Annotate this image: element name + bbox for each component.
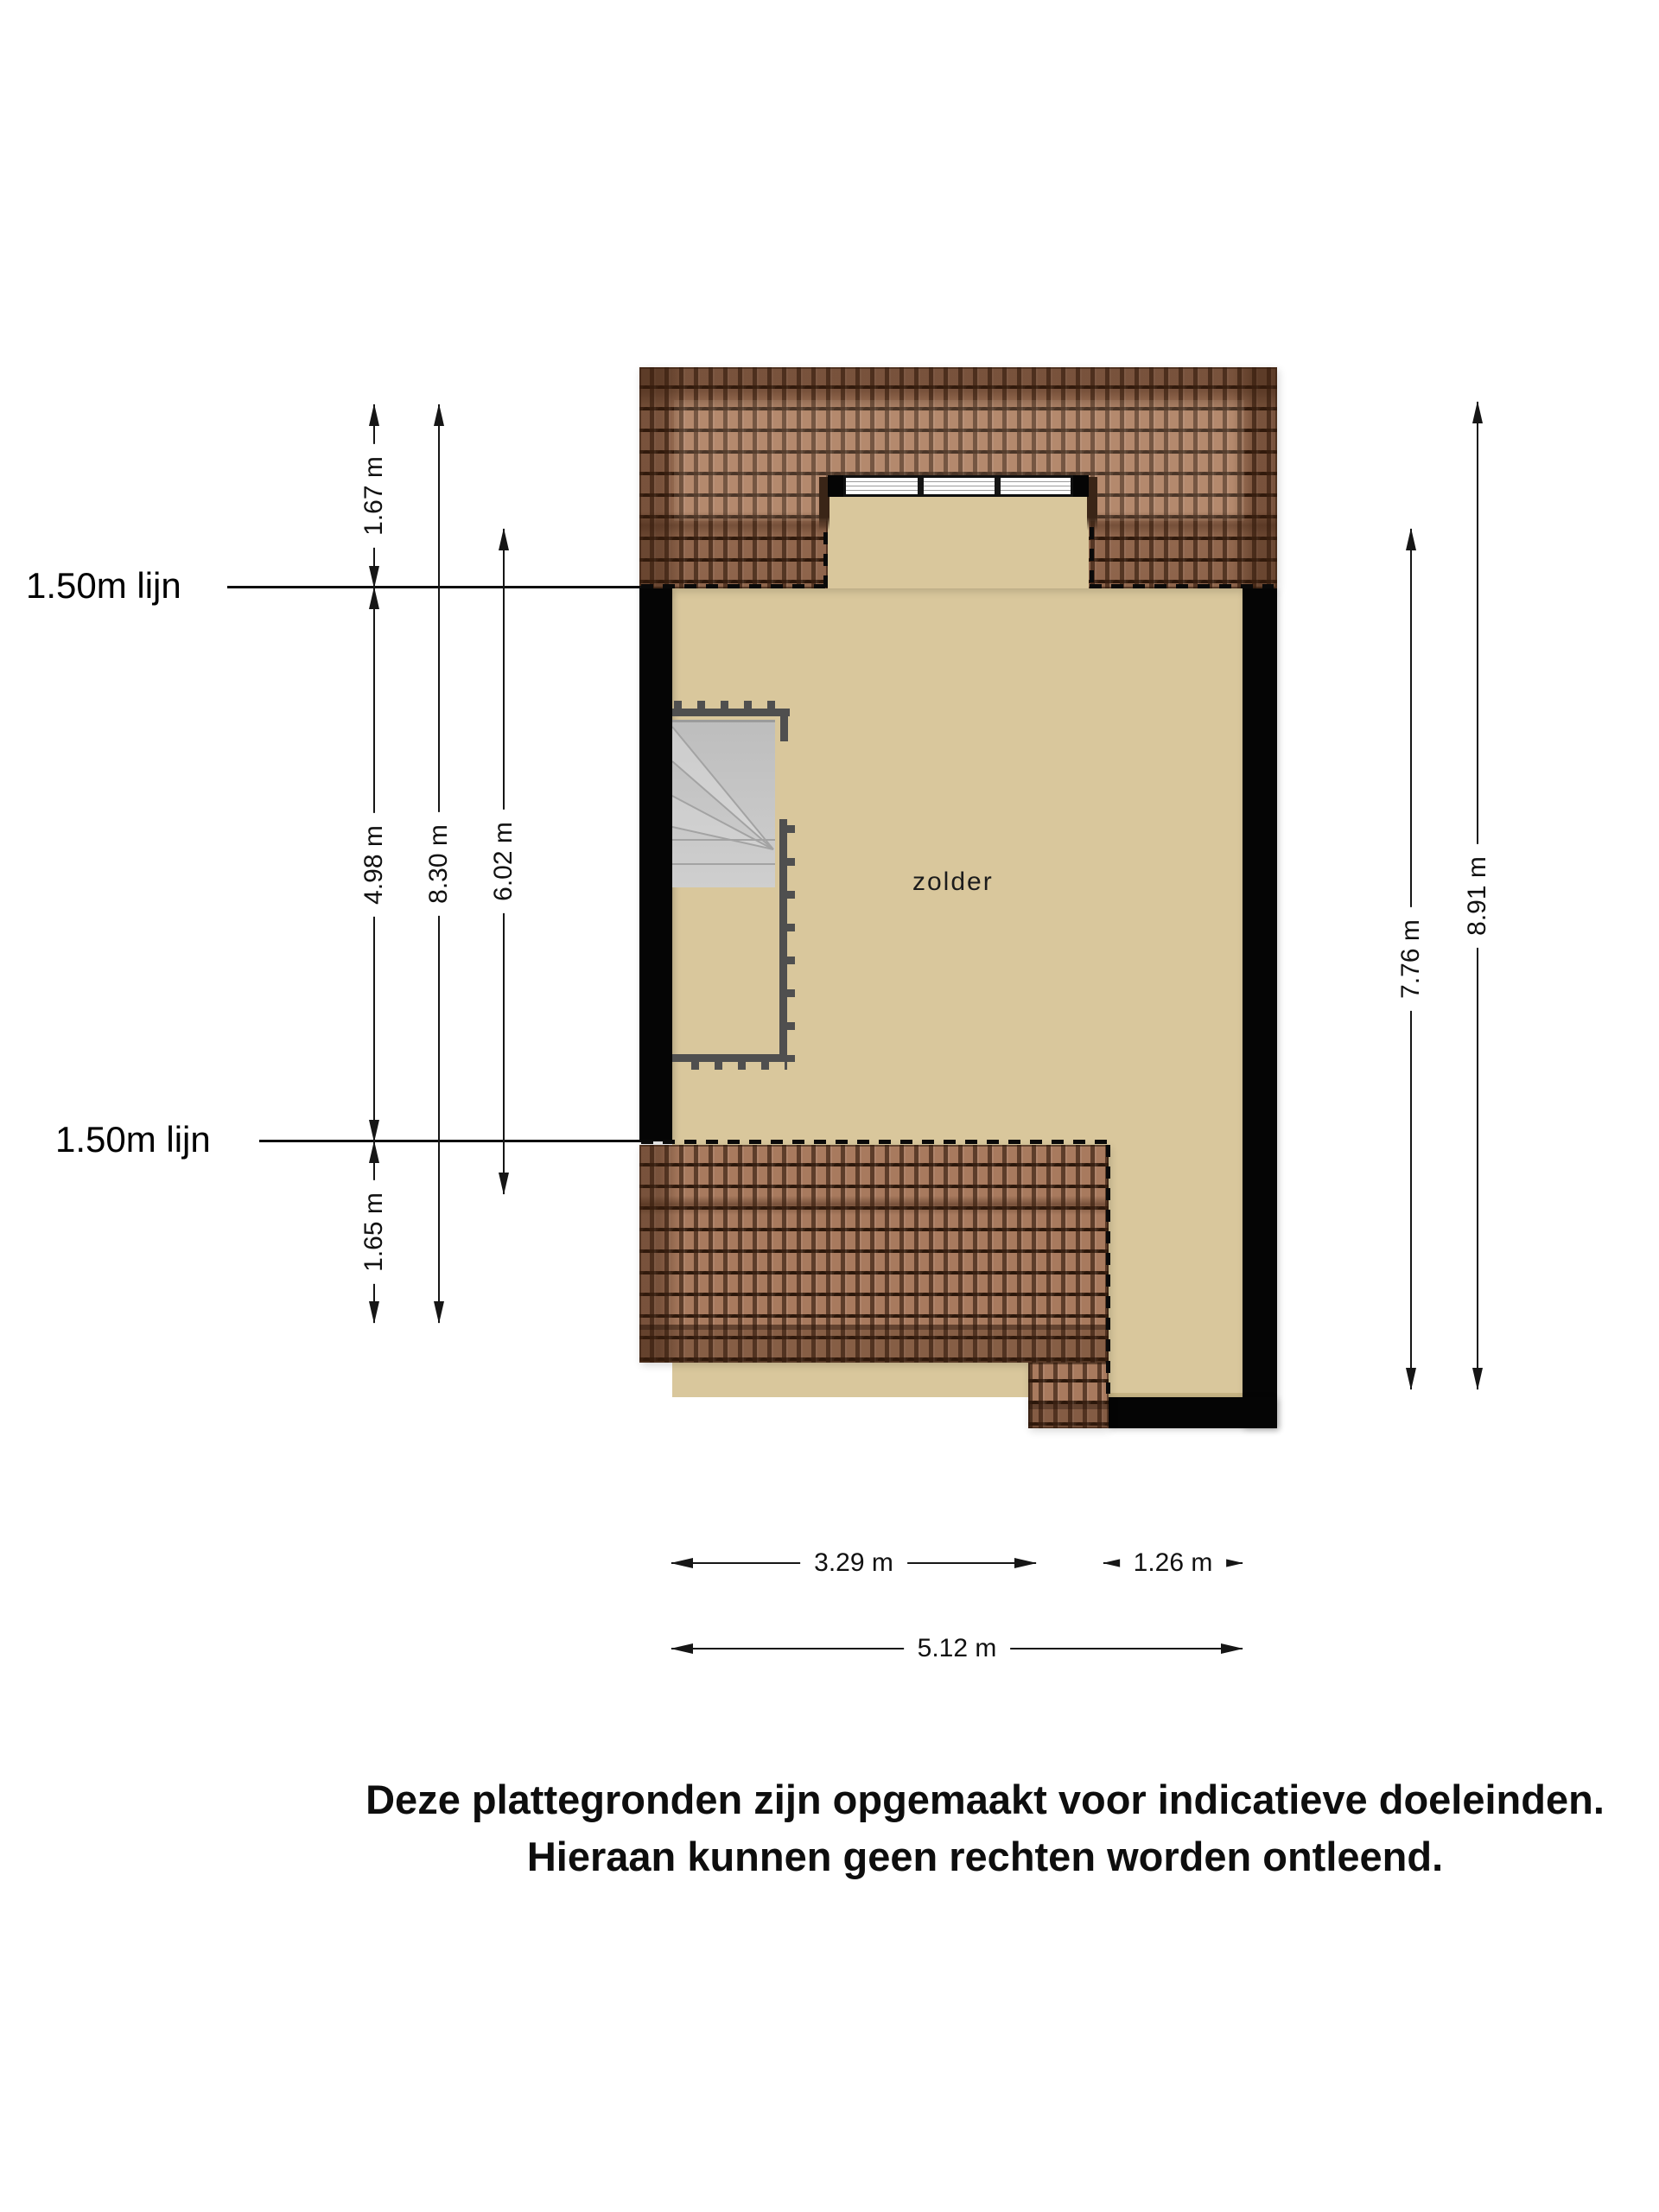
dimension-label: 8.91 m	[1461, 844, 1494, 948]
dimension-1-65: 1.65 m	[373, 1141, 375, 1323]
arrow-up-icon	[369, 404, 379, 426]
wall-right	[1243, 588, 1277, 1428]
arrow-up-icon	[434, 404, 444, 426]
dimension-label: 3.29 m	[800, 1548, 907, 1578]
window-mullion-2	[995, 478, 1001, 494]
arrow-down-icon	[369, 1120, 379, 1142]
dimension-1-67: 1.67 m	[373, 404, 375, 588]
disclaimer-line-2: Hieraan kunnen geen rechten worden ontle…	[311, 1828, 1659, 1885]
arrow-left-icon	[671, 1558, 693, 1568]
railing-top-stub	[780, 709, 788, 741]
railing-right-ticks	[787, 825, 795, 1062]
dormer-window	[843, 475, 1073, 497]
dormer-dashed-right	[1090, 527, 1094, 588]
roof-bottom-dashed-top	[641, 1140, 1109, 1144]
dimension-3-29: 3.29 m	[671, 1562, 1036, 1564]
arrow-down-icon	[1406, 1368, 1416, 1390]
dimension-label: 4.98 m	[358, 813, 391, 917]
arrow-left-icon	[671, 1643, 693, 1654]
dimension-label: 1.26 m	[1120, 1548, 1227, 1578]
railing-top-ticks	[674, 701, 790, 709]
dimension-4-98: 4.98 m	[373, 588, 375, 1141]
floorplan-canvas: zolder 1.50m lijn 1.50m lijn 1.67 m 4.98…	[0, 0, 1659, 2212]
room-label-zolder: zolder	[912, 868, 994, 897]
dimension-label: 1.67 m	[358, 444, 391, 548]
dormer-dashed-left	[823, 532, 828, 588]
line150-bottom-rule	[259, 1140, 641, 1142]
dormer-window-stub-left	[828, 475, 843, 497]
dimension-label: 5.12 m	[904, 1634, 1011, 1663]
line150-top-label: 1.50m lijn	[26, 565, 181, 607]
arrow-up-icon	[369, 1141, 379, 1163]
arrow-down-icon	[1472, 1368, 1483, 1390]
arrow-down-icon	[434, 1301, 444, 1324]
window-mullion-1	[918, 478, 924, 494]
railing-top	[672, 709, 790, 716]
dimension-8-30: 8.30 m	[438, 404, 440, 1323]
wall-bottom	[1109, 1397, 1277, 1428]
staircase	[672, 720, 775, 887]
railing-bottom	[672, 1054, 787, 1062]
roof-bottom-main	[639, 1145, 1109, 1363]
dimension-label: 8.30 m	[423, 812, 455, 916]
roof-bottom-dashed-right	[1106, 1145, 1110, 1394]
disclaimer-line-1: Deze plattegronden zijn opgemaakt voor i…	[311, 1771, 1659, 1828]
dimension-7-76: 7.76 m	[1410, 529, 1412, 1389]
arrow-up-icon	[499, 528, 509, 550]
railing-bottom-ticks	[691, 1062, 787, 1070]
disclaimer-text: Deze plattegronden zijn opgemaakt voor i…	[311, 1771, 1659, 1885]
arrow-down-icon	[369, 1301, 379, 1324]
arrow-right-icon	[1221, 1643, 1243, 1654]
line150-bottom-label: 1.50m lijn	[55, 1119, 211, 1160]
arrow-up-icon	[1472, 401, 1483, 423]
line150-top-rule	[227, 586, 641, 588]
dimension-1-26: 1.26 m	[1103, 1562, 1243, 1564]
dimension-label: 6.02 m	[487, 810, 520, 913]
dormer-window-stub-right	[1073, 475, 1089, 497]
dimension-label: 7.76 m	[1395, 907, 1427, 1011]
arrow-up-icon	[1406, 528, 1416, 550]
arrow-down-icon	[369, 566, 379, 588]
dimension-5-12: 5.12 m	[671, 1648, 1243, 1649]
arrow-right-icon	[1014, 1558, 1037, 1568]
wall-left	[639, 588, 672, 1141]
dimension-label: 1.65 m	[358, 1180, 391, 1284]
arrow-down-icon	[499, 1173, 509, 1195]
railing-right	[779, 819, 787, 1062]
dimension-6-02: 6.02 m	[503, 529, 505, 1194]
arrow-up-icon	[369, 587, 379, 609]
dimension-8-91: 8.91 m	[1477, 402, 1478, 1389]
roof-bottom-step	[1028, 1363, 1109, 1428]
